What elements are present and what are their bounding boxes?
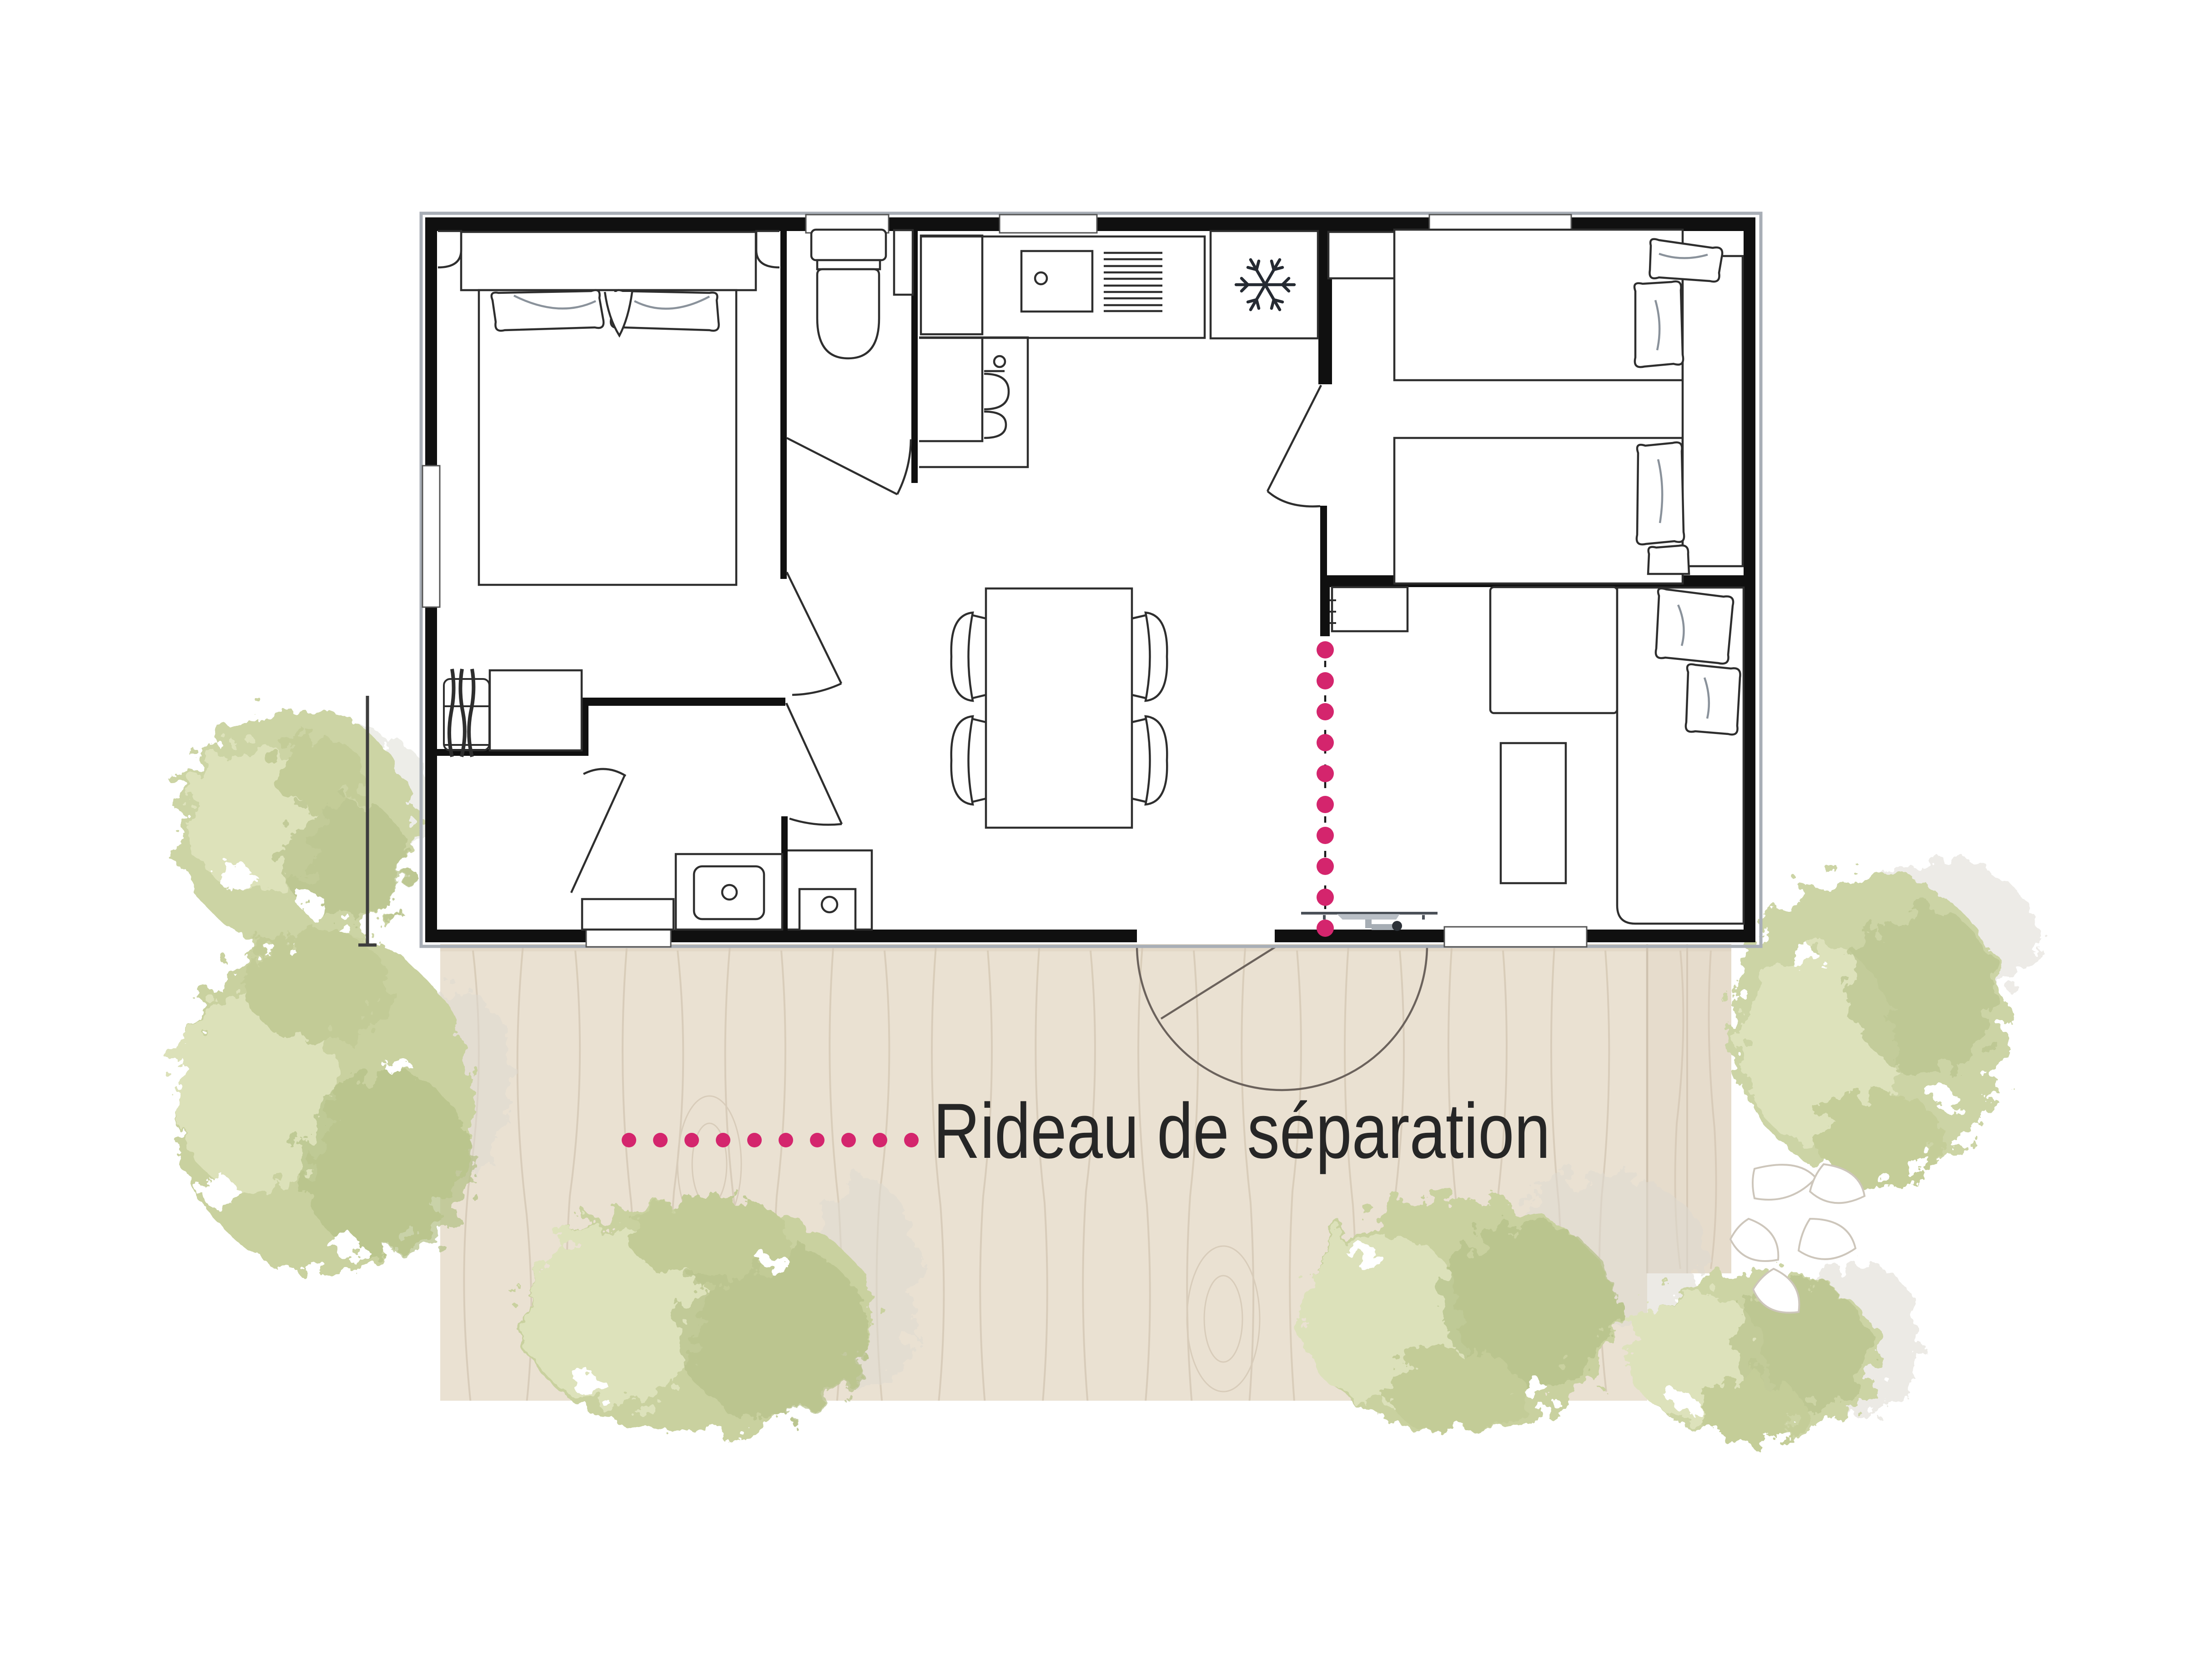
svg-text:Rideau de séparation: Rideau de séparation <box>933 1087 1550 1175</box>
